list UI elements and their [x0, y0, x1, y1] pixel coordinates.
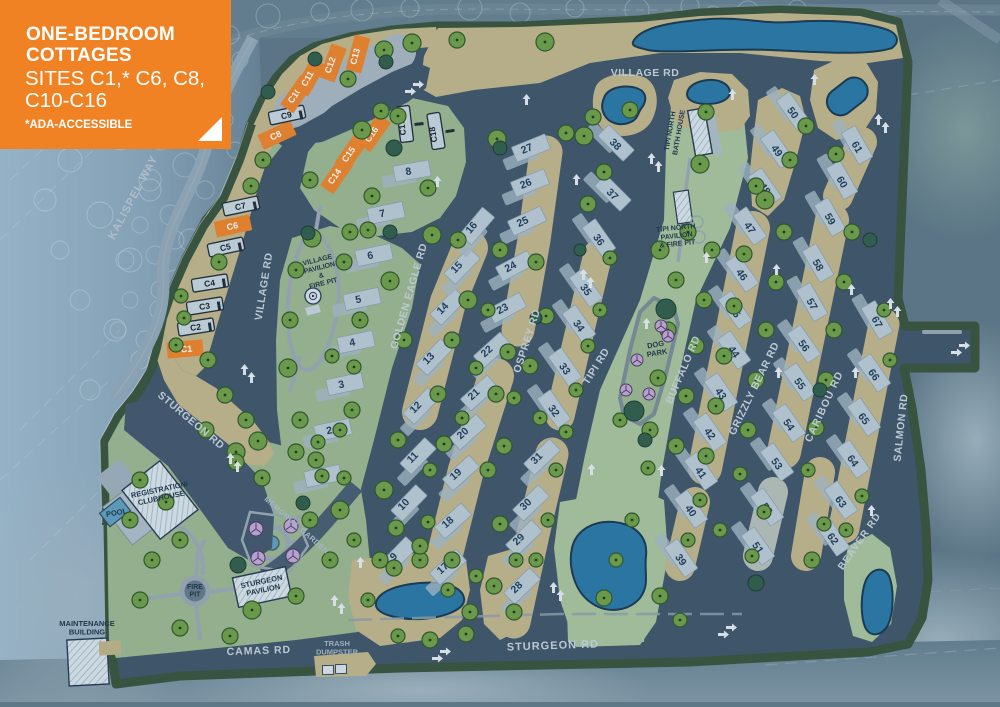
svg-text:C10-C16: C10-C16	[25, 89, 107, 112]
svg-text:ONE-BEDROOM: ONE-BEDROOM	[26, 24, 175, 45]
svg-text:COTTAGES: COTTAGES	[26, 45, 132, 66]
svg-text:SITES C1,* C6, C8,: SITES C1,* C6, C8,	[25, 67, 205, 90]
svg-text:*ADA-ACCESSIBLE: *ADA-ACCESSIBLE	[25, 119, 133, 131]
